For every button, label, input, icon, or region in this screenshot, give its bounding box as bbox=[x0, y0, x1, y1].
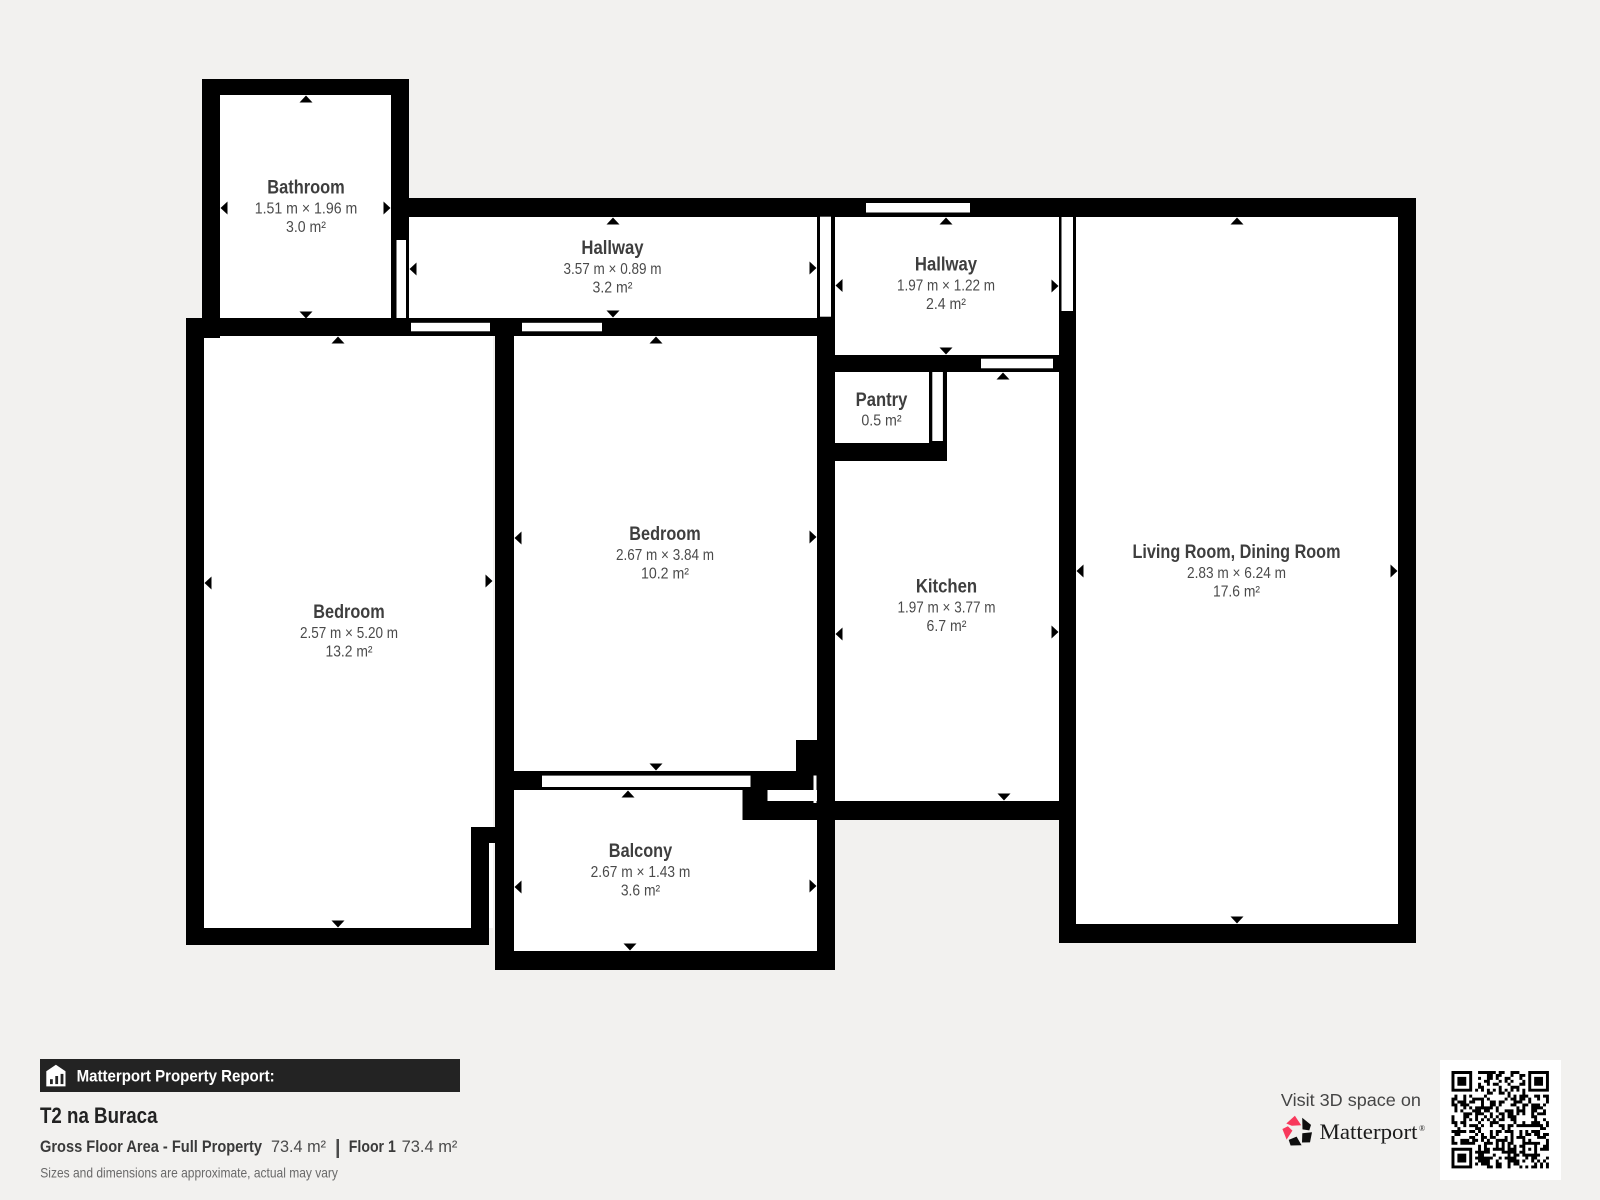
svg-text:Hallway: Hallway bbox=[581, 238, 644, 259]
svg-text:1.97 m × 1.22 m: 1.97 m × 1.22 m bbox=[897, 277, 995, 294]
svg-text:Sizes and dimensions are appro: Sizes and dimensions are approximate, ac… bbox=[40, 1164, 338, 1180]
svg-text:2.83 m × 6.24 m: 2.83 m × 6.24 m bbox=[1187, 565, 1286, 582]
svg-text:Living Room, Dining Room: Living Room, Dining Room bbox=[1133, 542, 1341, 563]
svg-text:2.57 m × 5.20 m: 2.57 m × 5.20 m bbox=[300, 625, 398, 642]
svg-text:Hallway: Hallway bbox=[915, 255, 978, 276]
svg-text:0.5 m²: 0.5 m² bbox=[861, 413, 901, 430]
svg-text:73.4 m²: 73.4 m² bbox=[402, 1138, 458, 1156]
svg-text:3.6 m²: 3.6 m² bbox=[621, 883, 660, 900]
svg-text:2.67 m × 3.84 m: 2.67 m × 3.84 m bbox=[616, 547, 714, 564]
svg-text:17.6 m²: 17.6 m² bbox=[1213, 584, 1260, 601]
svg-text:6.7 m²: 6.7 m² bbox=[927, 618, 967, 635]
svg-text:10.2 m²: 10.2 m² bbox=[641, 566, 689, 583]
svg-text:®: ® bbox=[1419, 1124, 1425, 1133]
svg-text:Balcony: Balcony bbox=[609, 841, 673, 862]
svg-text:73.4 m²: 73.4 m² bbox=[271, 1138, 326, 1156]
svg-text:1.51 m × 1.96 m: 1.51 m × 1.96 m bbox=[255, 200, 358, 217]
svg-text:Visit 3D space on: Visit 3D space on bbox=[1281, 1090, 1421, 1110]
svg-text:Bedroom: Bedroom bbox=[629, 524, 700, 545]
svg-text:3.2 m²: 3.2 m² bbox=[593, 280, 633, 297]
svg-text:Kitchen: Kitchen bbox=[916, 577, 977, 598]
svg-text:13.2 m²: 13.2 m² bbox=[326, 644, 373, 661]
svg-text:Bedroom: Bedroom bbox=[313, 602, 384, 623]
svg-text:Pantry: Pantry bbox=[856, 390, 908, 411]
svg-text:3.57 m × 0.89 m: 3.57 m × 0.89 m bbox=[564, 261, 662, 278]
svg-text:Matterport Property Report:: Matterport Property Report: bbox=[77, 1068, 275, 1086]
svg-text:2.4 m²: 2.4 m² bbox=[926, 296, 966, 313]
svg-text:2.67 m × 1.43 m: 2.67 m × 1.43 m bbox=[591, 864, 691, 881]
svg-text:Matterport: Matterport bbox=[1320, 1119, 1418, 1144]
svg-text:Floor 1: Floor 1 bbox=[349, 1137, 396, 1156]
svg-text:1.97 m × 3.77 m: 1.97 m × 3.77 m bbox=[898, 599, 996, 616]
svg-text:Gross Floor Area - Full Proper: Gross Floor Area - Full Property bbox=[40, 1137, 262, 1156]
svg-text:T2 na Buraca: T2 na Buraca bbox=[40, 1103, 158, 1128]
svg-text:Bathroom: Bathroom bbox=[267, 178, 345, 199]
svg-text:3.0 m²: 3.0 m² bbox=[286, 219, 326, 236]
